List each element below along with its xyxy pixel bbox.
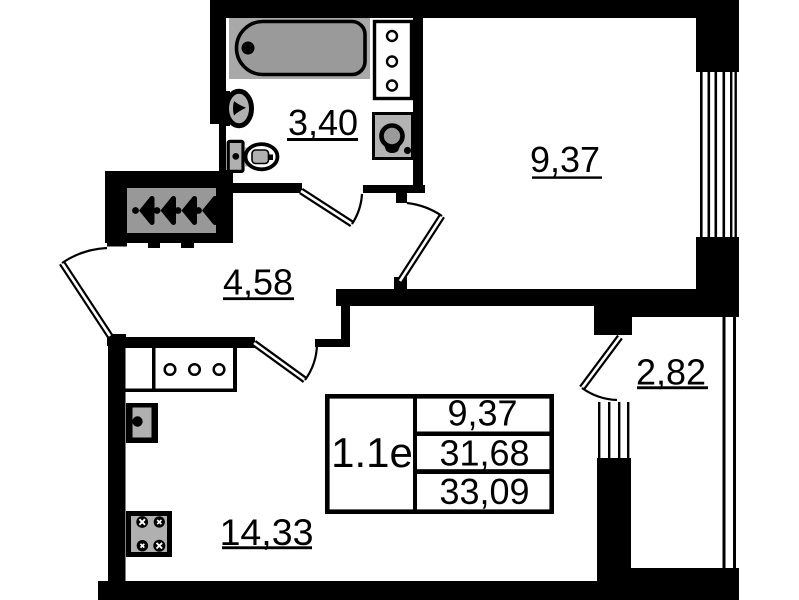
svg-text:3,40: 3,40 [288, 102, 358, 143]
svg-text:4,58: 4,58 [223, 262, 293, 303]
svg-text:9,37: 9,37 [447, 393, 517, 434]
svg-text:1.1e: 1.1e [331, 429, 413, 476]
svg-text:33,09: 33,09 [439, 471, 529, 512]
svg-text:9,37: 9,37 [530, 139, 600, 180]
svg-text:31,68: 31,68 [439, 433, 529, 474]
